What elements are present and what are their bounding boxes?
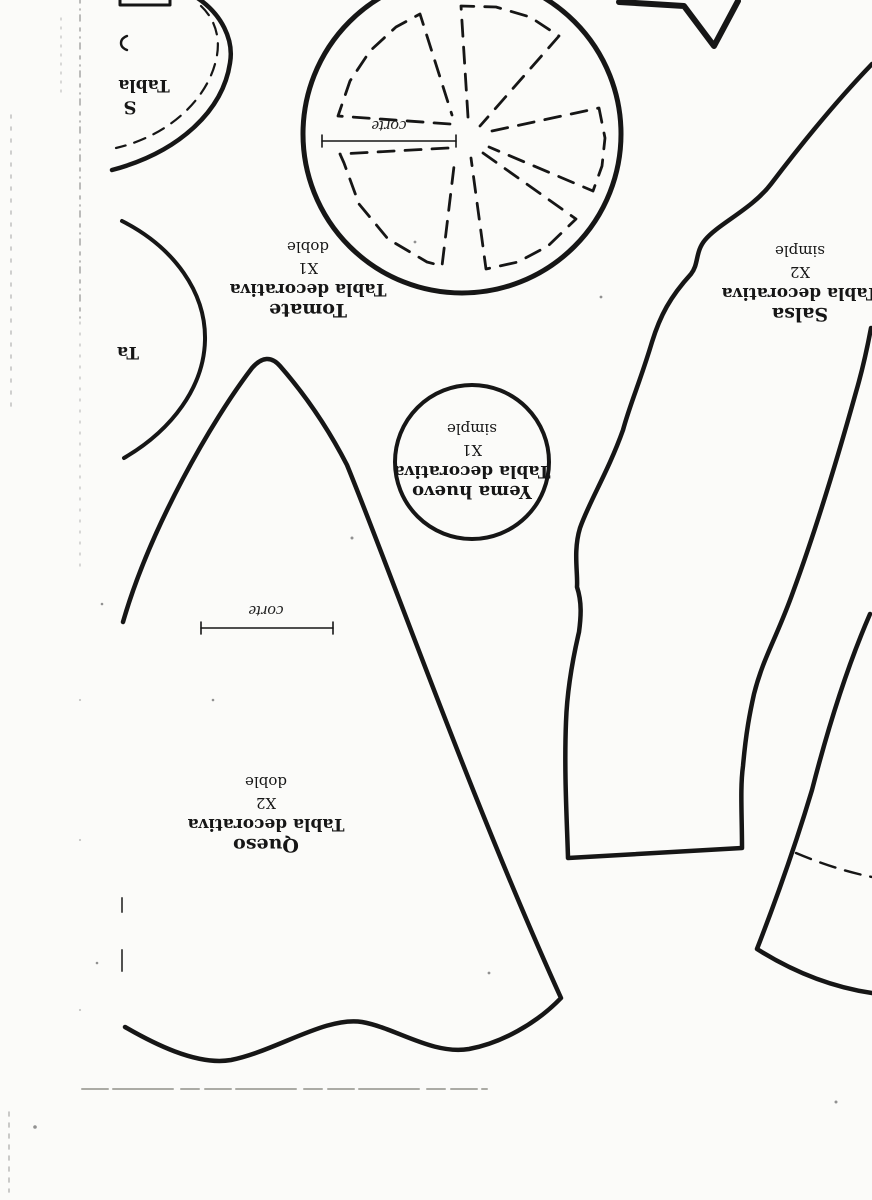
yema-type: Tabla decorativa [394, 460, 551, 481]
tomate-corte-label: corte [372, 116, 407, 136]
tomate-mode: doble [230, 236, 387, 257]
tomate-wedge-upper-left [338, 14, 452, 124]
queso-mode: doble [188, 771, 345, 792]
tomate-wedges [338, 6, 605, 269]
topright-zigzag-outline [619, 1, 738, 46]
yema-mode: simple [394, 418, 551, 439]
salsa-name: Salsa [722, 303, 872, 324]
topleft-partial-glyph [121, 36, 127, 50]
topleft-fragment-name: S [124, 97, 137, 118]
scan-specks [33, 241, 837, 1129]
queso-count: X2 [188, 792, 345, 813]
salsa-count: X2 [722, 261, 872, 282]
bottomright-partial-outline [757, 614, 872, 993]
topleft-fragment-tabla: Tabla [118, 75, 169, 95]
tomate-wedge-top [461, 6, 559, 126]
salsa-mode: simple [722, 240, 872, 261]
pattern-drawing-canvas [0, 0, 872, 1200]
scanned-pattern-page: Tomate Tabla decorativa X1 doble Salsa T… [0, 0, 872, 1200]
yema-label: Yema huevo Tabla decorativa X1 simple [394, 418, 551, 502]
bottomright-partial-dashline [796, 853, 872, 877]
cutoff-box-corner [120, 0, 170, 5]
tomate-name: Tomate [230, 299, 387, 320]
salsa-type: Tabla decorativa [722, 282, 872, 303]
queso-name: Queso [188, 834, 345, 855]
tomate-count: X1 [230, 257, 387, 278]
tomate-cut-measure [322, 135, 456, 147]
yema-name: Yema huevo [394, 481, 551, 502]
salsa-label: Salsa Tabla decorativa X2 simple [722, 240, 872, 324]
queso-type: Tabla decorativa [188, 813, 345, 834]
yema-count: X1 [394, 439, 551, 460]
queso-cut-measure [201, 622, 333, 634]
tomate-label: Tomate Tabla decorativa X1 doble [230, 236, 387, 320]
queso-label: Queso Tabla decorativa X2 doble [188, 771, 345, 855]
tomate-wedge-right [489, 108, 605, 191]
leftarc-fragment-ta: Ta [117, 342, 139, 362]
left-partial-arc-outline [122, 221, 205, 458]
tomate-type: Tabla decorativa [230, 278, 387, 299]
queso-corte-label: corte [249, 601, 284, 621]
tomate-wedge-lower-right [471, 153, 576, 269]
